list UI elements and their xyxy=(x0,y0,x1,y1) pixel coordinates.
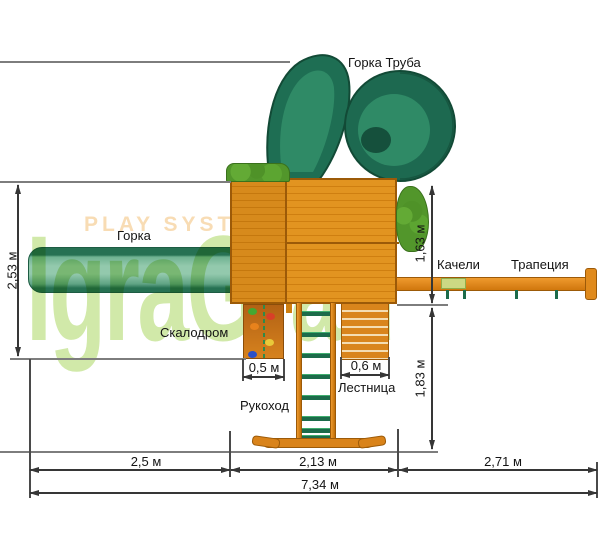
reference-line-base xyxy=(0,451,438,453)
arrowhead xyxy=(398,467,408,473)
bush xyxy=(226,163,290,182)
label-slide: Горка xyxy=(117,228,151,243)
dimension-line-slide-span xyxy=(30,469,230,471)
dimension-label-right-upper: 1,63 м xyxy=(413,212,428,276)
tower-roof-left-panel xyxy=(232,180,287,302)
dimension-label-slide-span: 2,5 м xyxy=(131,454,162,469)
dimension-label-right-lower: 1,83 м xyxy=(413,347,428,411)
playground-plan-diagram: PLAY SYSTEM IgraGrad xyxy=(0,0,600,546)
reference-line-wall-front xyxy=(10,358,246,360)
climbing-hold xyxy=(248,351,257,358)
stairs-graphic xyxy=(341,303,389,360)
dimension-label-depth: 2,53 м xyxy=(5,239,20,303)
arrowhead xyxy=(29,490,39,496)
monkey-bars-rung xyxy=(302,395,330,400)
arrowhead xyxy=(429,440,435,450)
reference-line-beam xyxy=(397,304,448,306)
arrowhead xyxy=(588,467,598,473)
label-trapeze: Трапеция xyxy=(511,257,569,272)
dimension-label-wall-width: 0,5 м xyxy=(249,360,280,375)
arrowhead xyxy=(29,467,39,473)
extension-line xyxy=(29,359,31,498)
trapeze-hanger xyxy=(515,290,518,299)
tower-roof xyxy=(230,178,397,304)
dimension-line-tower-span xyxy=(231,469,397,471)
arrowhead xyxy=(429,185,435,195)
swing-beam xyxy=(396,277,593,291)
climbing-hold xyxy=(266,313,275,320)
arrowhead xyxy=(230,467,240,473)
arrowhead xyxy=(429,294,435,304)
swing-hanger xyxy=(463,290,466,299)
arrowhead xyxy=(588,490,598,496)
dimension-line-right-lower xyxy=(431,308,433,449)
monkey-bars-rail xyxy=(330,302,336,448)
dimension-line-wall-width xyxy=(243,376,284,378)
monkey-bars-rung xyxy=(302,332,330,337)
label-monkey-bars: Рукоход xyxy=(240,398,289,413)
swing-hanger xyxy=(446,290,449,299)
dimension-label-ladder-width: 0,6 м xyxy=(351,358,382,373)
label-climbing-wall: Скалодром xyxy=(160,325,228,340)
monkey-bars-rung xyxy=(302,311,330,316)
tube-opening xyxy=(361,127,391,153)
dimension-line-swing-span xyxy=(399,469,597,471)
climbing-rope xyxy=(263,305,265,358)
dimension-label-swing-span: 2,71 м xyxy=(484,454,522,469)
climbing-hold xyxy=(248,308,257,315)
label-ladder: Лестница xyxy=(338,380,395,395)
dimension-label-total-length: 7,34 м xyxy=(301,477,339,492)
reference-line-top xyxy=(0,61,290,63)
dimension-line-ladder-width xyxy=(341,374,389,376)
monkey-bars-rung xyxy=(302,416,330,421)
arrowhead xyxy=(388,467,398,473)
dimension-line-total-length xyxy=(30,492,597,494)
arrowhead xyxy=(15,184,21,194)
arrowhead xyxy=(340,372,350,378)
climbing-wall-graphic xyxy=(243,304,284,359)
label-swing: Качели xyxy=(437,257,480,272)
support-post xyxy=(286,304,292,313)
monkey-bars-rung xyxy=(302,374,330,379)
climbing-hold xyxy=(250,323,259,330)
arrowhead xyxy=(429,307,435,317)
reference-line-tower-back xyxy=(0,181,231,183)
arrowhead xyxy=(15,347,21,357)
trapeze-hanger xyxy=(555,290,558,299)
climbing-hold xyxy=(265,339,274,346)
monkey-bars-rung xyxy=(302,428,330,433)
label-tube-slide: Горка Труба xyxy=(348,55,421,70)
swing-seat xyxy=(441,278,466,289)
tower-roof-divider xyxy=(287,242,399,244)
monkey-bars-rung xyxy=(302,353,330,358)
dimension-label-tower-span: 2,13 м xyxy=(299,454,337,469)
swing-beam-end-frame xyxy=(585,268,597,300)
dimension-line-right-upper xyxy=(431,186,433,303)
